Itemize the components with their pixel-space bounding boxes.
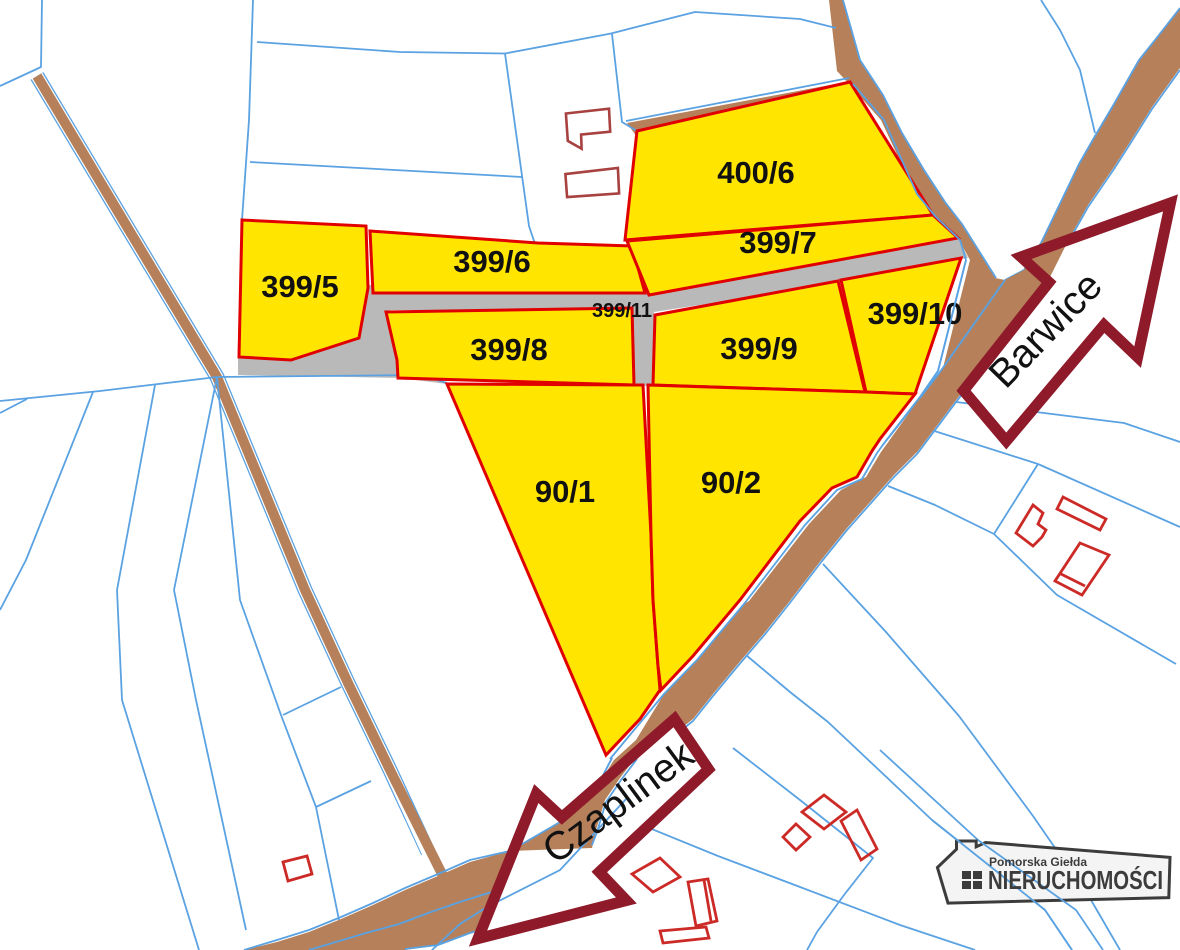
svg-text:400/6: 400/6: [717, 155, 795, 190]
svg-text:399/7: 399/7: [739, 225, 817, 260]
svg-text:399/5: 399/5: [261, 269, 339, 304]
svg-text:399/6: 399/6: [453, 244, 531, 279]
svg-text:399/10: 399/10: [868, 296, 963, 331]
svg-text:399/8: 399/8: [470, 332, 548, 367]
svg-text:NIERUCHOMOŚCI: NIERUCHOMOŚCI: [988, 865, 1163, 895]
svg-text:399/9: 399/9: [720, 331, 798, 366]
svg-text:90/1: 90/1: [535, 474, 595, 509]
svg-text:399/11: 399/11: [592, 300, 652, 322]
svg-text:90/2: 90/2: [701, 465, 761, 500]
